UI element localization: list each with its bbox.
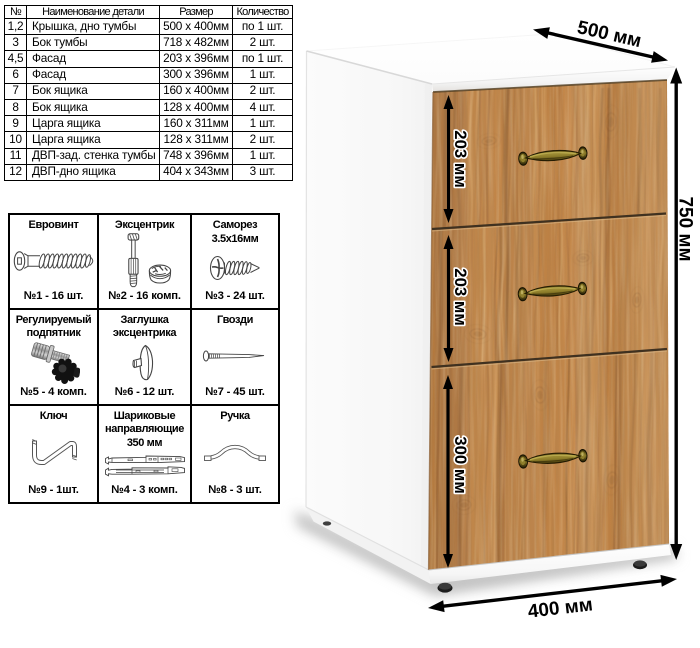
svg-text:400 мм: 400 мм [527, 594, 594, 622]
svg-text:750 мм: 750 мм [675, 196, 696, 261]
svg-text:300 мм: 300 мм [451, 436, 470, 494]
svg-text:203 мм: 203 мм [451, 268, 470, 326]
svg-text:203 мм: 203 мм [451, 130, 470, 188]
